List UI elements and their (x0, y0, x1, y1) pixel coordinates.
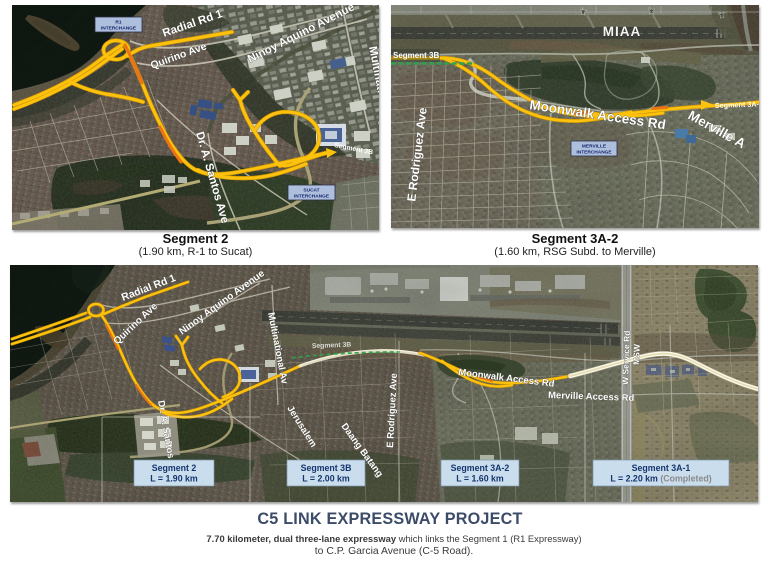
svg-text:INTERCHANGE: INTERCHANGE (101, 26, 137, 32)
svg-text:W Service Rd: W Service Rd (620, 330, 632, 385)
svg-text:Segment 3A-1: Segment 3A-1 (632, 463, 691, 473)
svg-text:R1: R1 (115, 20, 121, 26)
svg-text:L = 2.00 km: L = 2.00 km (302, 474, 350, 484)
svg-text:MSW: MSW (631, 343, 642, 365)
svg-text:Segment 3A-2: Segment 3A-2 (451, 463, 510, 473)
svg-text:L = 1.60 km: L = 1.60 km (456, 474, 504, 484)
svg-text:L = 2.20 km (Completed): L = 2.20 km (Completed) (610, 474, 711, 484)
svg-text:Segment 3B: Segment 3B (393, 51, 439, 60)
svg-text:Segment 2: Segment 2 (152, 463, 197, 473)
svg-text:MIAA: MIAA (603, 24, 642, 39)
svg-text:Segment 3B: Segment 3B (301, 463, 352, 473)
svg-text:INTERCHANGE: INTERCHANGE (576, 150, 612, 156)
svg-text:Segment 3B: Segment 3B (312, 342, 352, 350)
svg-text:L = 1.90 km: L = 1.90 km (150, 474, 198, 484)
svg-text:SUCAT: SUCAT (303, 188, 319, 194)
svg-text:MERVILLE: MERVILLE (582, 144, 607, 150)
svg-text:INTERCHANGE: INTERCHANGE (294, 194, 330, 200)
svg-text:Segment 3A-1: Segment 3A-1 (715, 99, 759, 110)
